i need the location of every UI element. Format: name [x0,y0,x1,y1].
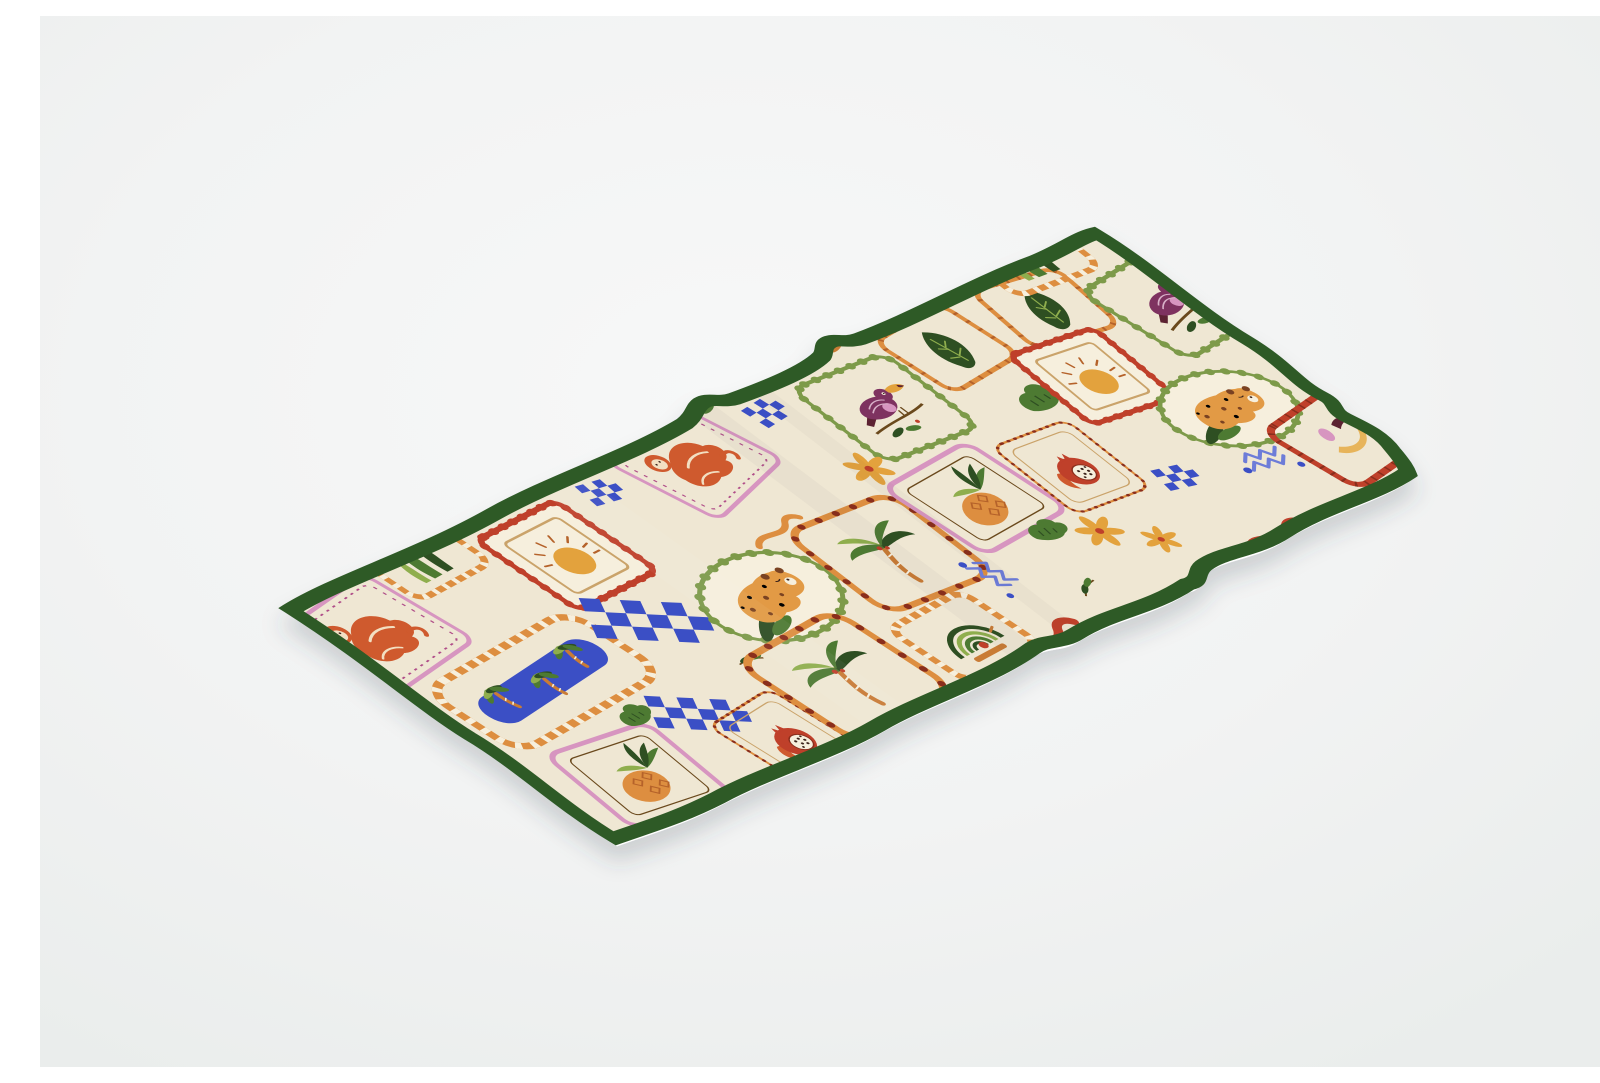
table-runner [223,186,1488,872]
product-mockup [40,16,1600,1067]
mockup-scene [40,16,1600,1067]
